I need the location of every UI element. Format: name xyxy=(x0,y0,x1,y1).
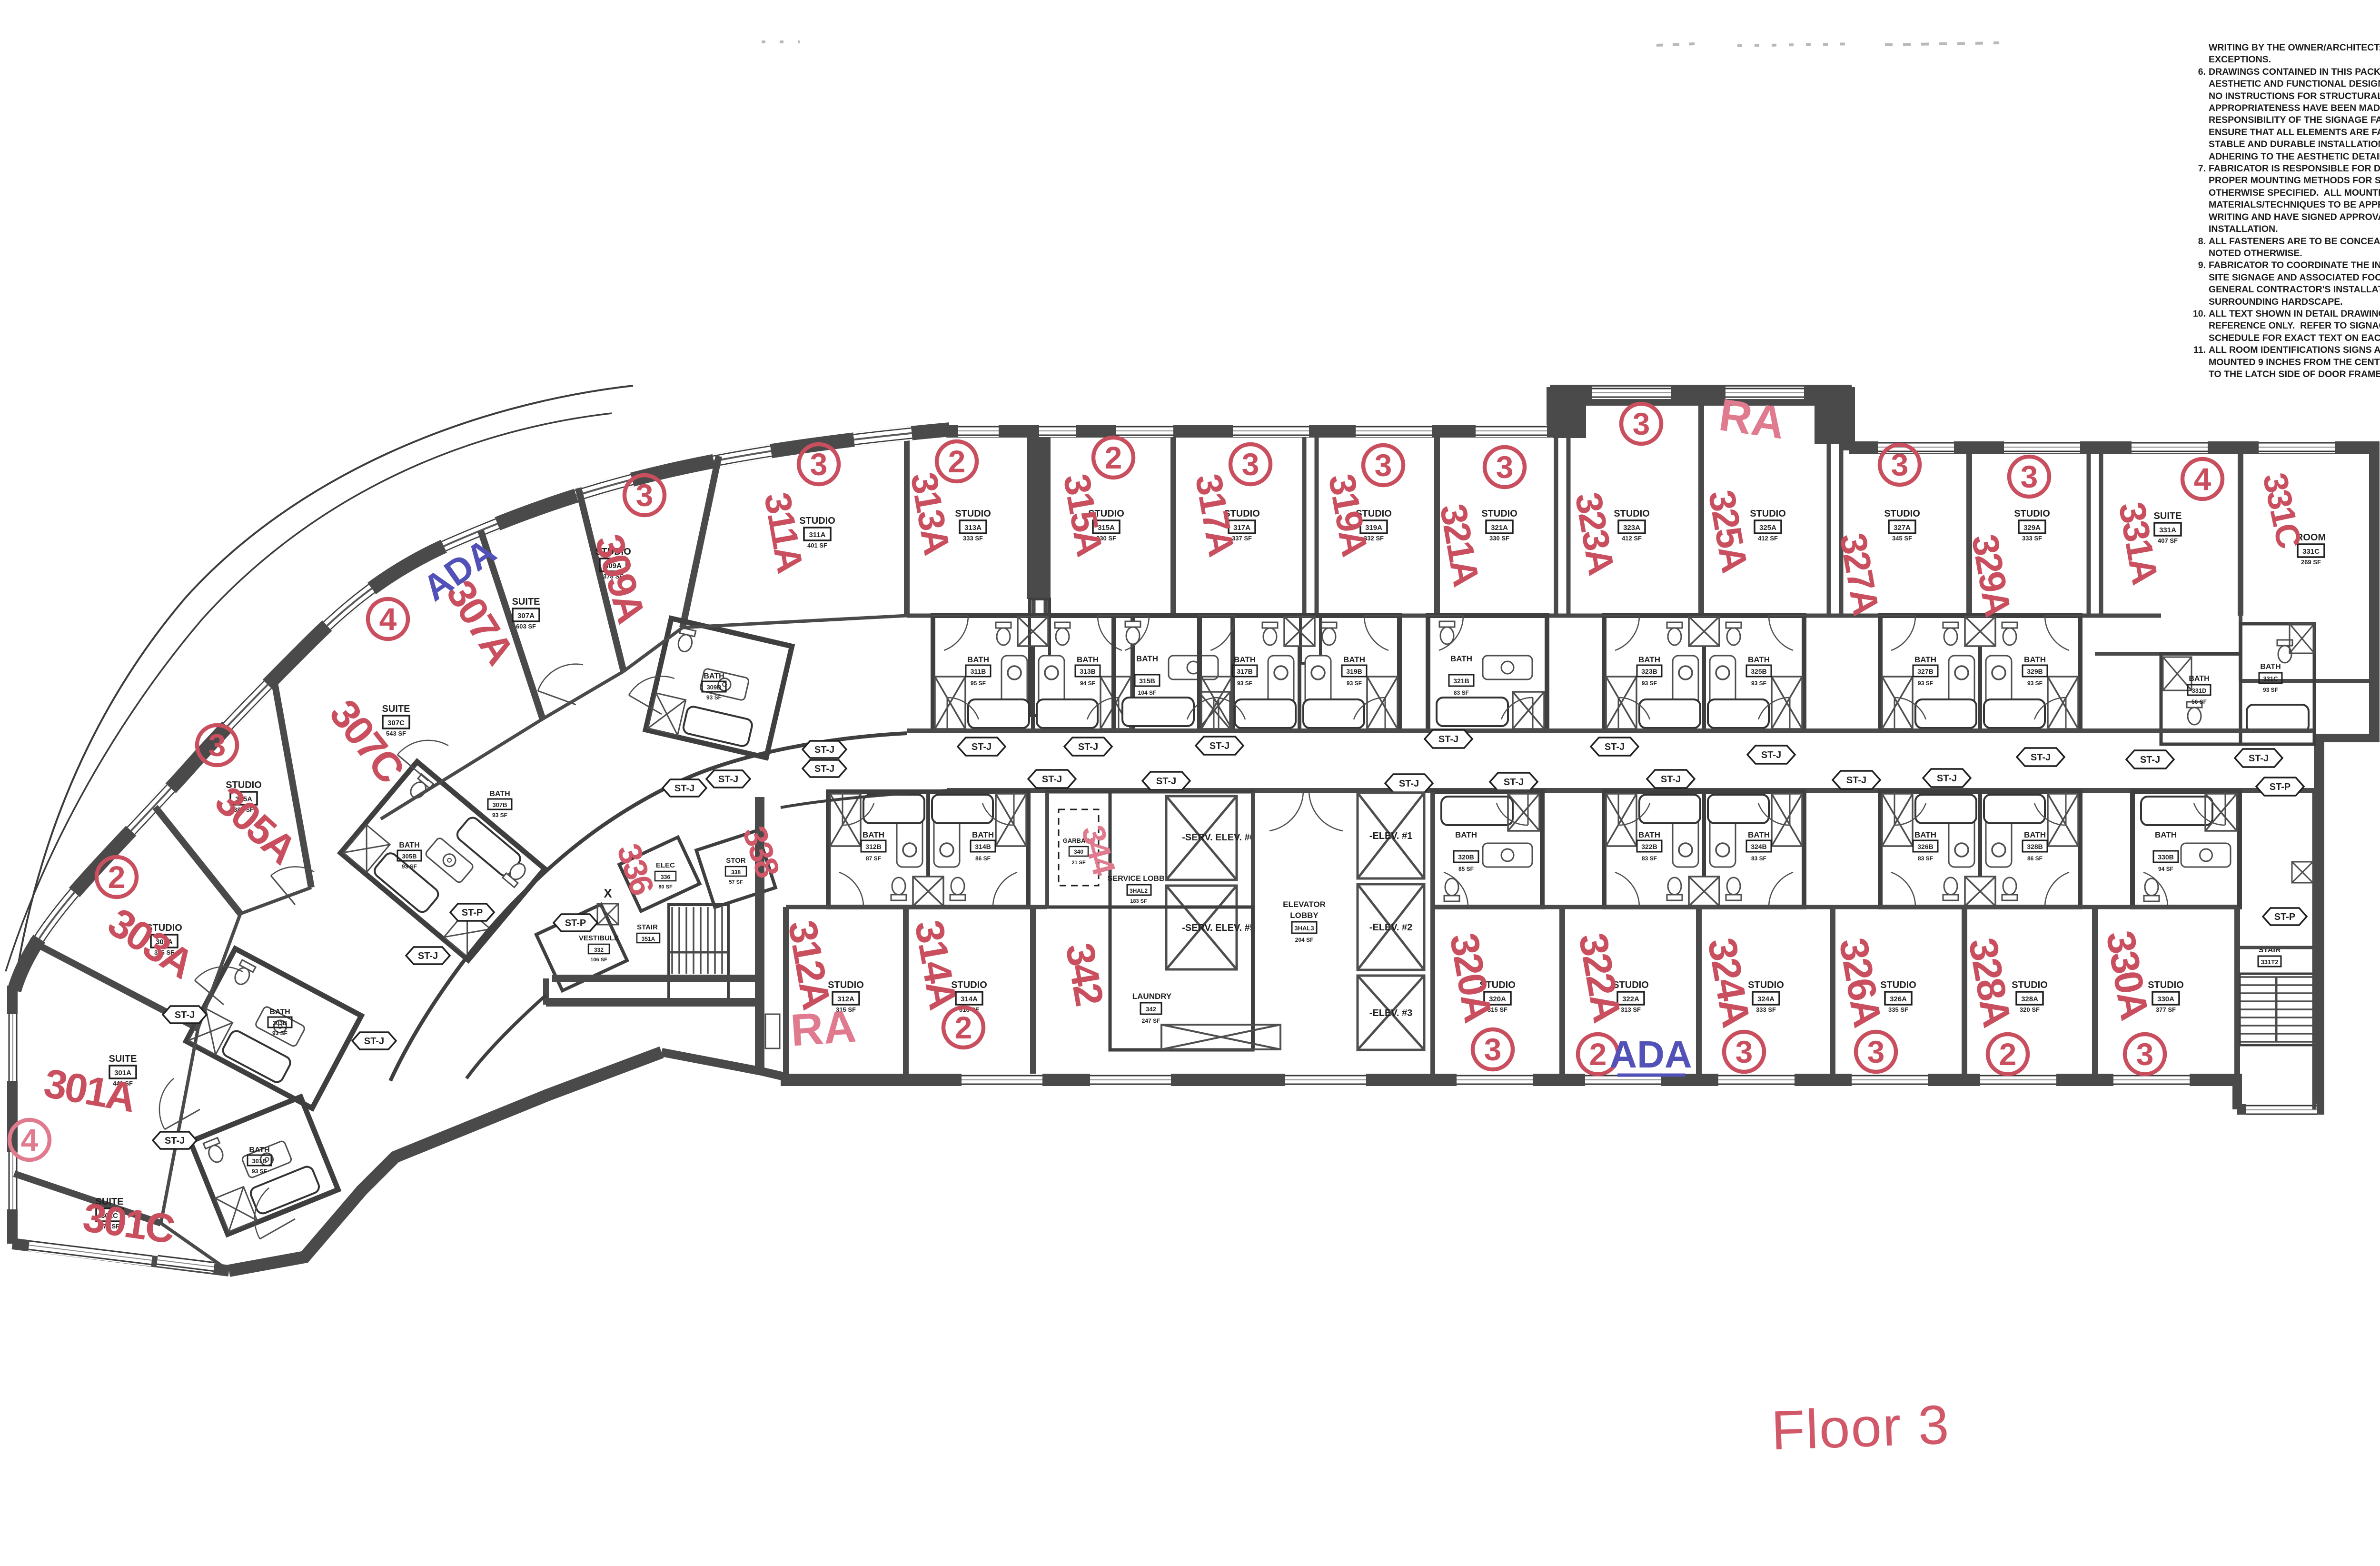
svg-text:ST-J: ST-J xyxy=(814,745,834,755)
svg-text:BATH: BATH xyxy=(1455,830,1477,839)
svg-text:313B: 313B xyxy=(1080,668,1095,675)
svg-text:307A: 307A xyxy=(517,612,535,620)
svg-text:328A: 328A xyxy=(2021,995,2038,1003)
svg-text:BATH: BATH xyxy=(967,655,989,664)
svg-text:333 SF: 333 SF xyxy=(1756,1006,1776,1013)
svg-text:RA: RA xyxy=(789,1001,858,1056)
svg-text:412 SF: 412 SF xyxy=(1758,535,1778,542)
svg-text:STUDIO: STUDIO xyxy=(1481,509,1517,519)
svg-text:BATH: BATH xyxy=(1077,655,1099,664)
svg-text:3: 3 xyxy=(1735,1034,1753,1069)
svg-text:2: 2 xyxy=(1589,1037,1607,1072)
svg-text:2: 2 xyxy=(955,1010,972,1045)
svg-text:ST-P: ST-P xyxy=(565,918,586,928)
svg-text:309B: 309B xyxy=(706,684,721,691)
svg-text:2: 2 xyxy=(108,859,126,895)
svg-text:328B: 328B xyxy=(2027,843,2043,850)
svg-text:87 SF: 87 SF xyxy=(866,855,881,862)
svg-text:331D: 331D xyxy=(2192,687,2206,694)
svg-text:3: 3 xyxy=(1867,1034,1885,1069)
svg-text:Floor 3: Floor 3 xyxy=(1770,1394,1951,1462)
svg-text:ST-J: ST-J xyxy=(1399,778,1419,789)
svg-text:STAIR: STAIR xyxy=(637,923,658,931)
svg-text:BATH: BATH xyxy=(1343,655,1365,664)
svg-text:377 SF: 377 SF xyxy=(2156,1006,2176,1013)
svg-text:BATH: BATH xyxy=(1748,830,1770,839)
svg-text:STUDIO: STUDIO xyxy=(799,516,835,526)
svg-text:ST-J: ST-J xyxy=(1156,776,1176,787)
svg-text:BATH: BATH xyxy=(269,1008,290,1016)
svg-text:3: 3 xyxy=(208,728,226,763)
svg-text:93 SF: 93 SF xyxy=(272,1030,288,1037)
svg-text:SUITE: SUITE xyxy=(2154,511,2182,521)
svg-text:56 SF: 56 SF xyxy=(2192,698,2207,705)
svg-text:94 SF: 94 SF xyxy=(1080,680,1095,687)
svg-text:93 SF: 93 SF xyxy=(252,1168,267,1175)
svg-text:3: 3 xyxy=(1633,406,1650,441)
svg-text:323B: 323B xyxy=(1641,668,1657,675)
svg-text:ST-J: ST-J xyxy=(1761,750,1781,760)
svg-text:330A: 330A xyxy=(2157,995,2174,1003)
svg-text:326B: 326B xyxy=(1917,843,1933,850)
svg-text:319B: 319B xyxy=(1346,668,1362,675)
svg-text:4: 4 xyxy=(21,1122,39,1157)
svg-text:307C: 307C xyxy=(387,719,405,727)
svg-text:STUDIO: STUDIO xyxy=(2148,980,2184,990)
svg-text:269 SF: 269 SF xyxy=(2301,559,2321,566)
svg-text:ST-J: ST-J xyxy=(1846,775,1866,786)
svg-text:ST-J: ST-J xyxy=(1078,742,1098,752)
svg-text:BATH: BATH xyxy=(1914,830,1936,839)
svg-text:3: 3 xyxy=(1484,1032,1502,1067)
svg-text:BATH: BATH xyxy=(1136,654,1158,663)
svg-text:2: 2 xyxy=(1999,1037,2017,1072)
svg-text:351A: 351A xyxy=(642,936,655,942)
svg-text:83 SF: 83 SF xyxy=(1454,689,1469,696)
svg-text:STUDIO: STUDIO xyxy=(2012,980,2048,990)
svg-text:BATH: BATH xyxy=(1748,655,1770,664)
svg-text:327A: 327A xyxy=(1894,524,1911,532)
svg-text:BATH: BATH xyxy=(2024,830,2046,839)
svg-text:STUDIO: STUDIO xyxy=(1884,509,1920,519)
svg-text:93 SF: 93 SF xyxy=(2263,687,2278,693)
svg-text:321A: 321A xyxy=(1491,524,1508,532)
svg-text:X: X xyxy=(604,886,612,900)
svg-text:333 SF: 333 SF xyxy=(963,535,983,542)
svg-text:STUDIO: STUDIO xyxy=(1614,509,1650,519)
svg-text:321B: 321B xyxy=(1453,677,1469,685)
svg-text:322B: 322B xyxy=(1641,843,1657,850)
svg-text:STUDIO: STUDIO xyxy=(2014,509,2050,519)
svg-text:BATH: BATH xyxy=(2024,655,2046,664)
svg-text:324B: 324B xyxy=(1751,843,1766,850)
svg-text:83 SF: 83 SF xyxy=(1642,855,1657,862)
svg-text:STUDIO: STUDIO xyxy=(1750,509,1786,519)
svg-text:BATH: BATH xyxy=(863,830,884,839)
svg-text:2: 2 xyxy=(948,444,966,479)
svg-text:325B: 325B xyxy=(1751,668,1766,675)
svg-text:ELEC: ELEC xyxy=(656,861,675,869)
svg-text:3: 3 xyxy=(2136,1037,2154,1072)
svg-text:335 SF: 335 SF xyxy=(1888,1006,1908,1013)
svg-text:3HAL3: 3HAL3 xyxy=(1294,925,1314,932)
svg-text:305B: 305B xyxy=(402,853,416,860)
svg-text:204 SF: 204 SF xyxy=(1295,937,1314,943)
svg-text:57 SF: 57 SF xyxy=(729,879,743,885)
svg-text:330B: 330B xyxy=(2158,853,2173,861)
svg-text:ST-J: ST-J xyxy=(1937,773,1957,784)
svg-text:BATH: BATH xyxy=(399,841,419,849)
svg-text:603 SF: 603 SF xyxy=(516,623,536,630)
svg-text:BATH: BATH xyxy=(1638,655,1660,664)
svg-text:317B: 317B xyxy=(1237,668,1252,675)
svg-text:3: 3 xyxy=(1242,447,1259,482)
svg-text:SERVICE LOBBY: SERVICE LOBBY xyxy=(1108,875,1170,883)
svg-text:106 SF: 106 SF xyxy=(590,957,607,963)
svg-text:RA: RA xyxy=(1716,389,1788,449)
svg-text:330 SF: 330 SF xyxy=(1489,535,1509,542)
svg-text:412 SF: 412 SF xyxy=(1622,535,1642,542)
svg-text:95 SF: 95 SF xyxy=(971,680,986,687)
svg-text:307B: 307B xyxy=(492,801,507,808)
svg-text:BATH: BATH xyxy=(489,790,510,798)
svg-text:BATH: BATH xyxy=(1450,654,1472,663)
svg-text:-ELEV. #2: -ELEV. #2 xyxy=(1369,922,1412,933)
svg-text:BATH: BATH xyxy=(1914,655,1936,664)
svg-text:85 SF: 85 SF xyxy=(1458,866,1474,872)
svg-text:326A: 326A xyxy=(1890,995,1907,1003)
svg-text:BATH: BATH xyxy=(972,830,994,839)
svg-text:STOR: STOR xyxy=(726,857,746,865)
svg-text:ST-J: ST-J xyxy=(175,1010,195,1020)
svg-text:BATH: BATH xyxy=(249,1146,269,1154)
svg-text:3: 3 xyxy=(1891,447,1909,482)
svg-text:320B: 320B xyxy=(1458,853,1474,861)
svg-text:ST-P: ST-P xyxy=(462,908,483,918)
svg-text:320 SF: 320 SF xyxy=(2020,1006,2040,1013)
svg-text:SUITE: SUITE xyxy=(512,597,540,607)
svg-text:BATH: BATH xyxy=(1638,830,1660,839)
svg-text:3: 3 xyxy=(1375,448,1392,483)
svg-text:83 SF: 83 SF xyxy=(1751,855,1766,862)
svg-text:BATH: BATH xyxy=(704,672,724,680)
svg-text:ST-J: ST-J xyxy=(718,774,738,785)
svg-text:315B: 315B xyxy=(1139,677,1155,685)
svg-text:303B: 303B xyxy=(272,1019,287,1027)
svg-text:LOBBY: LOBBY xyxy=(1290,911,1319,920)
svg-text:345 SF: 345 SF xyxy=(1892,535,1912,542)
svg-text:-ELEV. #3: -ELEV. #3 xyxy=(1369,1008,1412,1018)
svg-text:407 SF: 407 SF xyxy=(2158,537,2178,544)
svg-text:ST-J: ST-J xyxy=(418,951,438,961)
svg-text:325A: 325A xyxy=(1759,524,1776,532)
svg-text:BATH: BATH xyxy=(1234,655,1256,664)
svg-text:324A: 324A xyxy=(1757,995,1775,1003)
svg-text:323A: 323A xyxy=(1623,524,1640,532)
svg-text:4: 4 xyxy=(379,601,397,637)
svg-text:-SERV. ELEV. #6: -SERV. ELEV. #6 xyxy=(1182,832,1255,843)
svg-text:ST-J: ST-J xyxy=(2140,755,2160,765)
svg-text:STUDIO: STUDIO xyxy=(1880,980,1916,990)
svg-text:LAUNDRY: LAUNDRY xyxy=(1132,992,1172,1001)
svg-text:311B: 311B xyxy=(971,668,986,675)
svg-text:VESTIBULE: VESTIBULE xyxy=(579,934,619,942)
svg-text:BATH: BATH xyxy=(2155,830,2177,839)
svg-text:ST-J: ST-J xyxy=(1042,774,1062,785)
svg-text:338: 338 xyxy=(731,869,741,876)
svg-text:332: 332 xyxy=(594,947,604,953)
svg-text:-SERV. ELEV. #5: -SERV. ELEV. #5 xyxy=(1182,923,1255,933)
svg-text:183 SF: 183 SF xyxy=(1130,898,1147,904)
svg-text:94 SF: 94 SF xyxy=(2158,866,2173,872)
svg-text:329A: 329A xyxy=(2023,524,2041,532)
svg-text:331C: 331C xyxy=(2263,675,2278,682)
svg-text:-ELEV. #1: -ELEV. #1 xyxy=(1369,831,1412,841)
svg-text:93 SF: 93 SF xyxy=(1237,680,1252,687)
svg-text:327B: 327B xyxy=(1917,668,1933,675)
svg-text:93 SF: 93 SF xyxy=(492,812,507,818)
svg-text:333 SF: 333 SF xyxy=(2022,535,2042,542)
svg-text:ST-J: ST-J xyxy=(1504,777,1524,788)
svg-text:ST-J: ST-J xyxy=(2249,753,2269,764)
svg-text:93 SF: 93 SF xyxy=(1918,680,1933,687)
svg-text:93 SF: 93 SF xyxy=(2027,680,2043,687)
svg-text:ST-J: ST-J xyxy=(2031,752,2051,763)
svg-text:313A: 313A xyxy=(964,524,982,532)
svg-text:ST-J: ST-J xyxy=(364,1036,384,1047)
svg-text:ST-J: ST-J xyxy=(1438,734,1458,745)
svg-text:3HAL2: 3HAL2 xyxy=(1130,888,1148,894)
svg-text:3: 3 xyxy=(810,447,828,482)
svg-text:86 SF: 86 SF xyxy=(2027,855,2043,862)
svg-text:ELEVATOR: ELEVATOR xyxy=(1283,900,1326,909)
svg-text:83 SF: 83 SF xyxy=(1918,855,1933,862)
svg-text:314B: 314B xyxy=(975,843,991,850)
svg-text:86 SF: 86 SF xyxy=(975,855,991,862)
svg-text:312B: 312B xyxy=(865,843,881,850)
svg-text:301B: 301B xyxy=(252,1157,267,1165)
svg-text:ST-P: ST-P xyxy=(2274,912,2295,922)
svg-text:93 SF: 93 SF xyxy=(1642,680,1657,687)
svg-text:311A: 311A xyxy=(809,531,825,539)
svg-text:ST-J: ST-J xyxy=(814,764,834,774)
svg-text:SUITE: SUITE xyxy=(109,1054,137,1064)
svg-text:ST-J: ST-J xyxy=(1210,741,1230,751)
svg-text:BATH: BATH xyxy=(2189,675,2209,683)
svg-text:336: 336 xyxy=(661,874,670,880)
svg-text:ST-J: ST-J xyxy=(1661,774,1681,785)
svg-text:3: 3 xyxy=(636,478,654,513)
svg-text:93 SF: 93 SF xyxy=(402,863,417,870)
svg-text:331T2: 331T2 xyxy=(2261,958,2279,966)
svg-text:ST-J: ST-J xyxy=(972,742,992,752)
svg-text:342: 342 xyxy=(1146,1006,1156,1013)
svg-text:93 SF: 93 SF xyxy=(706,694,722,701)
svg-text:4: 4 xyxy=(2194,461,2211,497)
svg-text:401 SF: 401 SF xyxy=(807,542,827,549)
svg-text:ADA: ADA xyxy=(1609,1033,1692,1076)
svg-text:2: 2 xyxy=(1105,440,1122,475)
svg-text:ST-P: ST-P xyxy=(2270,782,2291,792)
svg-text:ST-J: ST-J xyxy=(165,1136,185,1146)
svg-text:STUDIO: STUDIO xyxy=(955,509,991,519)
svg-text:331C: 331C xyxy=(2302,548,2320,556)
svg-text:BATH: BATH xyxy=(2260,663,2281,671)
svg-text:104 SF: 104 SF xyxy=(1138,689,1157,696)
svg-text:ST-J: ST-J xyxy=(1605,742,1625,752)
svg-text:3: 3 xyxy=(1496,449,1514,485)
svg-text:93 SF: 93 SF xyxy=(1751,680,1766,687)
svg-text:93 SF: 93 SF xyxy=(1347,680,1362,687)
svg-text:ST-J: ST-J xyxy=(674,783,694,794)
svg-text:331A: 331A xyxy=(2159,526,2176,534)
svg-text:247 SF: 247 SF xyxy=(1142,1017,1160,1024)
svg-text:SUITE: SUITE xyxy=(382,704,410,714)
svg-text:329B: 329B xyxy=(2027,668,2043,675)
svg-text:3: 3 xyxy=(2021,459,2038,494)
